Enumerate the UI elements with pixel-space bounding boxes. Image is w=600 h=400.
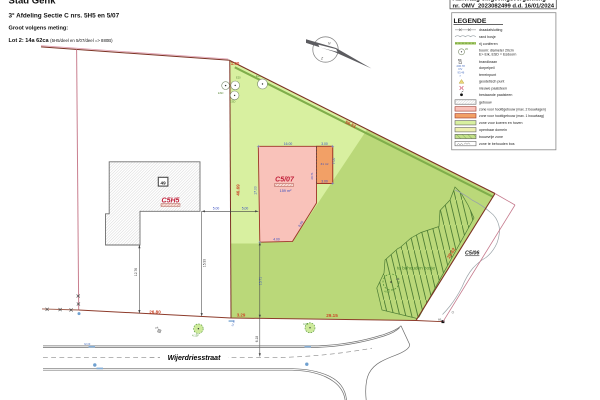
svg-text:zone voor hoofdgebouw (max. 2: zone voor hoofdgebouw (max. 2 bouwlagen)	[479, 107, 546, 111]
svg-text:5,00: 5,00	[242, 206, 249, 210]
svg-text:12.76: 12.76	[134, 268, 138, 276]
svg-text:20.71: 20.71	[310, 172, 314, 180]
svg-text:15.71: 15.71	[259, 277, 263, 285]
svg-text:49: 49	[161, 180, 167, 185]
svg-text:4.13F: 4.13F	[192, 334, 199, 338]
svg-text:5.00: 5.00	[213, 206, 220, 210]
svg-text:ESD: ESD	[218, 91, 223, 95]
svg-text:Groot volgens meting:: Groot volgens meting:	[9, 26, 69, 32]
svg-text:nr. OMV_2023082499 d.d. 16/01/: nr. OMV_2023082499 d.d. 16/01/2024	[453, 4, 555, 10]
svg-text:openbaar domein: openbaar domein	[479, 128, 507, 132]
svg-text:Lot 2: 14a 62ca (5H5/deel en 5: Lot 2: 14a 62ca (5H5/deel en 5/07/deel =…	[9, 38, 114, 44]
svg-text:29.15: 29.15	[326, 313, 338, 318]
svg-text:zone voor hoofdgebouw (max. 1: zone voor hoofdgebouw (max. 1 bouwlaag)	[479, 114, 544, 118]
svg-text:17.00: 17.00	[254, 186, 258, 195]
svg-text:3.00: 3.00	[321, 179, 328, 183]
svg-text:E> Eik, ESD = Esdoorn: E> Eik, ESD = Esdoorn	[479, 53, 516, 57]
svg-text:4.05: 4.05	[384, 290, 390, 294]
svg-text:Aanvraag omgevingsvergunning: Aanvraag omgevingsvergunning	[453, 0, 547, 2]
svg-text:N: N	[328, 42, 331, 46]
svg-text:rij coniferen: rij coniferen	[479, 42, 498, 46]
svg-text:C5H5: C5H5	[162, 197, 180, 204]
svg-text:pk: pk	[156, 326, 160, 330]
svg-text:7.00: 7.00	[332, 158, 336, 165]
svg-text:bouwvrije zone: bouwvrije zone	[479, 135, 503, 139]
svg-text:zone voor koeren en hoven: zone voor koeren en hoven	[479, 121, 523, 125]
svg-text:bestaande paalsteen: bestaande paalsteen	[479, 93, 512, 97]
svg-text:16.00: 16.00	[284, 142, 293, 146]
svg-text:rand bosje: rand bosje	[479, 35, 496, 39]
svg-text:zone te behouden bos: zone te behouden bos	[479, 142, 515, 146]
svg-text:Wijerdriesstraat: Wijerdriesstraat	[168, 355, 222, 362]
svg-text:terreinpunt: terreinpunt	[479, 73, 496, 77]
svg-text:3.00: 3.00	[321, 142, 328, 146]
svg-text:C5/06: C5/06	[465, 251, 480, 257]
svg-text:1.90: 1.90	[231, 61, 240, 66]
svg-text:Stad Genk: Stad Genk	[9, 0, 57, 6]
svg-text:gebouw: gebouw	[479, 100, 492, 104]
svg-text:46.69: 46.69	[236, 184, 241, 196]
svg-text:3.29: 3.29	[237, 313, 246, 318]
svg-text:draadafsluiting: draadafsluiting	[479, 28, 502, 32]
svg-text:4.00: 4.00	[273, 237, 280, 241]
svg-text:dorpelpeil: dorpelpeil	[479, 66, 495, 70]
svg-text:DV: DV	[459, 67, 463, 71]
svg-text:159 m²: 159 m²	[280, 189, 293, 193]
svg-text:31 m²: 31 m²	[321, 162, 329, 166]
svg-text:brandkraan: brandkraan	[479, 60, 497, 64]
svg-text:LEGENDE: LEGENDE	[454, 18, 487, 25]
svg-text:66: 66	[438, 317, 442, 321]
svg-text:ESD: ESD	[230, 100, 235, 104]
svg-text:C5/07: C5/07	[275, 177, 295, 184]
svg-text:4.05: 4.05	[303, 322, 309, 326]
svg-text:26.80: 26.80	[149, 310, 161, 315]
svg-text:te behouden bosje: te behouden bosje	[397, 266, 435, 271]
svg-text:15.93: 15.93	[202, 259, 206, 267]
svg-text:32.09: 32.09	[84, 343, 91, 346]
svg-text:nieuwe paalsteen: nieuwe paalsteen	[479, 86, 507, 90]
svg-text:geodetisch punt: geodetisch punt	[479, 80, 504, 84]
svg-text:6.18: 6.18	[255, 336, 259, 343]
svg-text:BK: BK	[458, 58, 462, 62]
svg-text:eik: eik	[396, 277, 400, 281]
svg-text:Z: Z	[320, 57, 324, 61]
svg-text:E20: E20	[256, 74, 261, 78]
svg-text:E20: E20	[236, 76, 241, 80]
svg-text:3° Afdeling Sectie C nrs. 5H5: 3° Afdeling Sectie C nrs. 5H5 en 5/07	[9, 11, 120, 19]
